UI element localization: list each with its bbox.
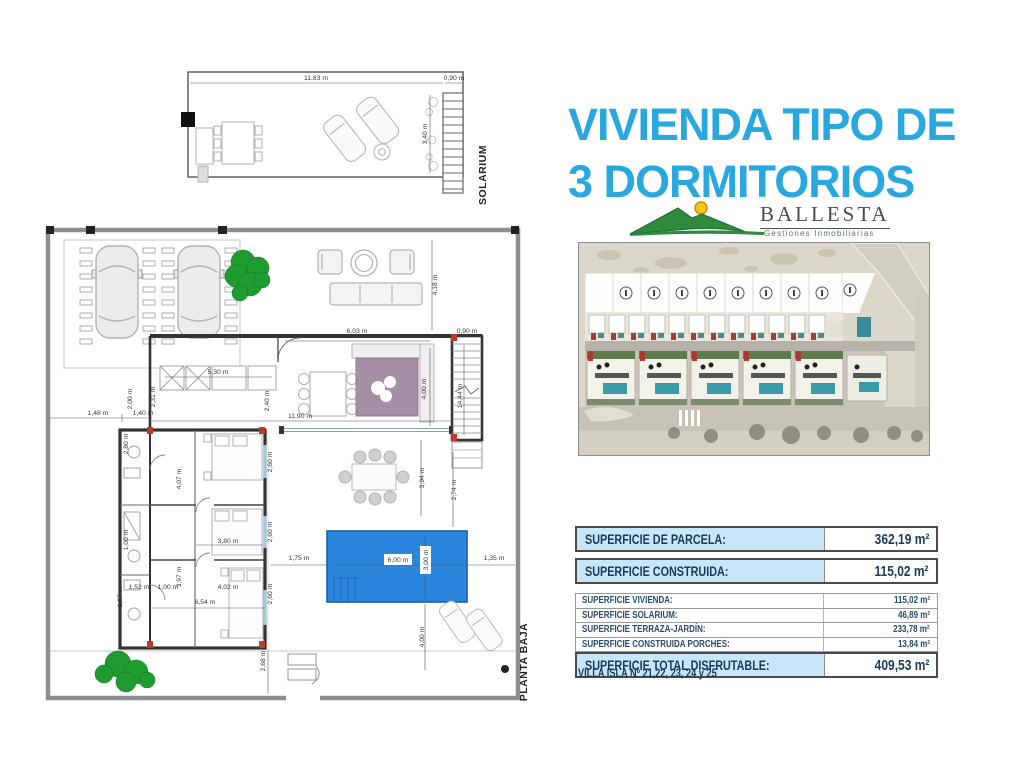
surface-table-row: SUPERFICIE CONSTRUIDA:115,02 m² [575,558,938,584]
dimension-label: 2,68 m [260,650,267,671]
dimension-label: 3,00 m [423,549,430,570]
villa-note-text: VILLA ISLA Nº 21,22, 23, 24 y 25 [578,668,717,680]
site-aerial-photo [578,242,930,456]
dimension-label: 2,60 m [267,521,274,542]
floorplan-drawing: SOLARIUM [0,0,560,768]
dimension-label: 1,48 m [88,410,109,417]
dimension-label: 6,03 m [347,328,368,335]
agency-logo: BALLESTA Gestiones Inmobiliarias [618,196,908,244]
solarium-table-icon [214,122,262,164]
dimension-label: 4,00 m [419,626,426,647]
surface-row-value: 362,19 m² [825,528,936,550]
logo-tagline: Gestiones Inmobiliarias [764,229,875,238]
entrance-icon [288,654,319,684]
logo-wordmark: BALLESTA [760,202,890,229]
car-icon [92,246,142,338]
ground-floor-plan: PLANTA BAJA [46,226,530,702]
dimension-label: 4,00 m [421,378,428,399]
dimension-label: 4,07 m [176,468,183,489]
dimension-label: 1,40 m [133,410,154,417]
surface-row-label: SUPERFICIE VIVIENDA: [576,594,824,608]
dimension-label: 0,90 m [457,328,478,335]
villa-note: VILLA ISLA Nº 21,22, 23, 24 y 25 [578,668,751,680]
surface-table-row: SUPERFICIE TERRAZA-JARDÍN:233,78 m² [575,622,938,638]
dimension-label: 2,31 m [150,386,157,407]
car-icon [174,246,224,338]
dimension-label: 1,35 m [484,555,505,562]
brochure-page: SOLARIUM [0,0,1024,768]
dimension-label: 2,00 m [127,388,134,409]
villa-row [585,351,887,407]
dimension-label: 2,40 m [264,390,271,411]
dimension-label: 2,60 m [267,583,274,604]
side-table-icon [374,144,390,160]
surface-row-label: SUPERFICIE SOLARIUM: [576,609,824,623]
dimension-label: 11,83 m [304,75,328,82]
dimension-label: 6,00 m [388,557,409,564]
surface-row-value: 46,89 m² [824,609,937,623]
dimension-label: 2,60 m [267,451,274,472]
surface-table: SUPERFICIE DE PARCELA:362,19 m²SUPERFICI… [575,526,938,678]
bed-icon [212,509,262,555]
dimension-label: 1,00 m [123,529,130,550]
surface-row-label: SUPERFICIE CONSTRUIDA: [577,560,825,582]
dining-table-icon [299,372,358,416]
page-title: VIVIENDA TIPO DE 3 DORMITORIOS [568,96,998,210]
surface-row-value: 115,02 m² [824,594,937,608]
solarium-stairs-icon [443,93,463,193]
dimension-label: 2,80 m [123,433,130,454]
solarium-label: SOLARIUM [477,145,489,205]
dimension-label: 1,00 m [158,584,179,591]
surface-table-row: SUPERFICIE SOLARIUM:46,89 m² [575,608,938,624]
surface-table-row: SUPERFICIE DE PARCELA:362,19 m² [575,526,938,552]
dimension-label: 1,52 m [129,584,150,591]
dimension-label: 4,02 m [218,584,239,591]
surface-row-value: 233,78 m² [824,623,937,637]
dimension-label: 3,94 m [419,467,426,488]
dimension-label: 1,07 m [117,586,124,607]
dimension-label: 14,44 m [457,383,464,408]
surface-row-label: SUPERFICIE CONSTRUIDA PORCHES: [576,638,824,652]
bed-icon [204,434,262,480]
planta-baja-label: PLANTA BAJA [518,623,530,701]
dimension-label: 4,18 m [432,274,439,295]
surface-table-row: SUPERFICIE VIVIENDA:115,02 m² [575,593,938,609]
dimension-label: 5,30 m [208,369,229,376]
dimension-label: 2,74 m [451,479,458,500]
surface-table-row: SUPERFICIE CONSTRUIDA PORCHES:13,84 m² [575,637,938,653]
dimension-label: 1,75 m [289,555,310,562]
solarium-plan: SOLARIUM [181,72,489,205]
dimension-label: 3,40 m [422,123,429,144]
dimension-label: 3,80 m [218,538,239,545]
pool [327,531,467,602]
surface-row-value: 13,84 m² [824,638,937,652]
dimension-label: 0,90 m [444,75,465,82]
dimension-label: 6,54 m [195,599,216,606]
title-line1: VIVIENDA TIPO DE [568,96,998,153]
surface-row-value: 409,53 m² [825,654,936,676]
chimney-icon [181,112,195,127]
surface-row-label: SUPERFICIE TERRAZA-JARDÍN: [576,623,824,637]
mountain-sun-logo-icon [618,196,768,244]
surface-row-value: 115,02 m² [825,560,936,582]
surface-row-label: SUPERFICIE DE PARCELA: [577,528,825,550]
dimension-label: 11,90 m [288,413,312,420]
